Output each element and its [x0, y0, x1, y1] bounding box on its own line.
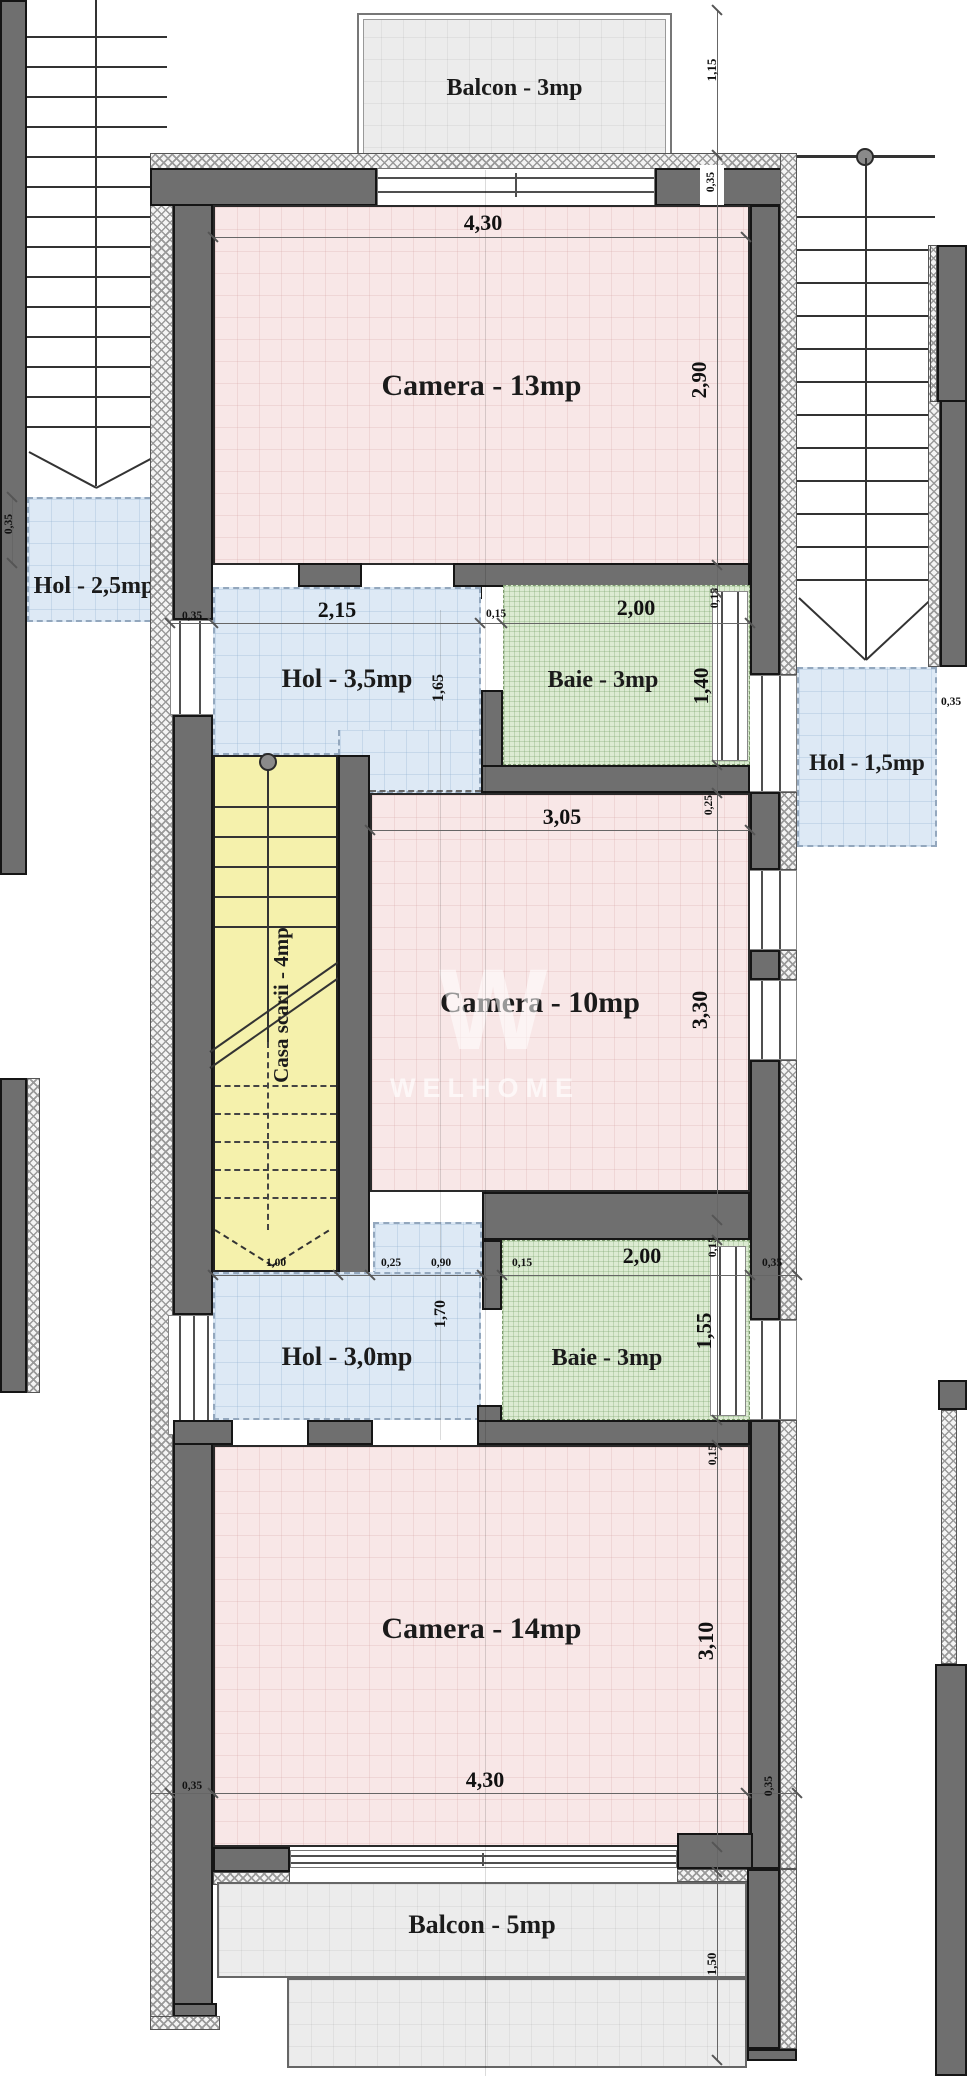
wall-segment [0, 0, 27, 875]
dim-baie-sus-wall: 0,25 [702, 787, 716, 823]
wall-left [173, 1435, 213, 2016]
door-right [748, 675, 797, 792]
wall-right [750, 205, 780, 675]
wall-segment [937, 245, 967, 402]
room-label: Camera - 13mp [213, 369, 750, 403]
dim-line [170, 623, 750, 624]
window-right [748, 980, 797, 1060]
wall-segment [938, 1380, 967, 1410]
stair-step-dashed [215, 1197, 336, 1199]
insulation-hatch [930, 245, 937, 402]
room-balcon-bottom-step [287, 1978, 747, 2068]
dim-camera10-height: 3,30 [688, 975, 712, 1045]
dim-wall-top-right: 0,35 [704, 164, 718, 200]
dim-line [150, 1793, 797, 1794]
room-label: Balcon - 5mp [217, 1910, 747, 1940]
stair-newel [259, 753, 277, 771]
dim-row-jos-right-wall: 0,35 [752, 1256, 792, 1270]
room-label: Camera - 14mp [213, 1612, 750, 1646]
wall-right [750, 950, 780, 980]
dim-camera13-width: 4,30 [383, 211, 583, 235]
dim-camera14-width: 4,30 [385, 1768, 585, 1792]
window-right [748, 1320, 797, 1420]
dim-wall-bottom-right: 0,35 [762, 1768, 776, 1804]
dim-row-jos-pier: 0,15 [502, 1256, 542, 1270]
door-left [170, 620, 214, 715]
dim-row-jos-scara: 1,00 [254, 1256, 298, 1270]
wall-stair-right [338, 755, 370, 1308]
threshold-dashed [370, 790, 481, 792]
insulation-hatch [150, 2016, 220, 2030]
dim-line [370, 830, 750, 831]
room-label: Casa scarii - 4mp [268, 890, 294, 1120]
wall-right [750, 792, 780, 870]
window-top [377, 168, 655, 206]
wall-top [655, 168, 797, 206]
dim-row-sus-baie-width: 2,00 [566, 596, 706, 620]
insulation-hatch [27, 1078, 40, 1393]
wall-segment [747, 2049, 797, 2061]
dim-row-jos-wall: 0,25 [371, 1256, 411, 1270]
dim-wall-bottom-left: 0,35 [172, 1779, 212, 1793]
wall-left [173, 168, 213, 620]
wall-segment [213, 1847, 290, 1872]
wall-segment [935, 1664, 967, 2076]
room-hol-2-5 [27, 497, 170, 622]
insulation-hatch [780, 1060, 797, 1320]
stair-step-dashed [215, 1169, 336, 1171]
stair-center-line [865, 158, 867, 660]
dim-baie-jos-height: 1,55 [692, 1296, 716, 1366]
dim-hol35-height: 1,65 [429, 658, 449, 718]
insulation-hatch [677, 1869, 750, 1882]
dim-hol25-wall: 0,35 [2, 506, 16, 542]
stair-left-exterior [27, 8, 167, 456]
wall-segment [298, 563, 362, 587]
stair-arrow [798, 597, 866, 661]
room-label: Baie - 3mp [502, 1344, 712, 1372]
wall-segment [307, 1420, 373, 1445]
floor-plan: Hol - 2,5mp 0,35 Balcon - 3mp 0,35 Camer… [0, 0, 967, 2076]
dim-baie-sus-height: 1,40 [689, 651, 713, 721]
dim-line [213, 237, 746, 238]
wall-left [173, 715, 213, 1315]
dim-balcon-bottom-depth: 1,50 [704, 1939, 720, 1989]
dim-line-vertical-right [717, 10, 718, 2060]
dim-hol15-wall: 0,35 [932, 695, 967, 709]
dim-row-jos-opening: 0,90 [421, 1256, 461, 1270]
insulation-hatch [150, 153, 173, 2030]
stair-step-dashed [215, 1141, 336, 1143]
dim-row-sus-opening: 2,15 [257, 598, 417, 622]
stair-arrow [29, 451, 97, 488]
dim-balcon-top-depth: 1,15 [704, 45, 720, 95]
dim-hol30-height: 1,70 [431, 1284, 451, 1344]
dim-camera13-height: 2,90 [687, 345, 711, 415]
dim-row-jos-baie-width: 2,00 [572, 1244, 712, 1268]
window-right [748, 870, 797, 950]
wall-segment [0, 1078, 27, 1393]
dim-row-sus-left-wall: 0,35 [172, 609, 212, 623]
room-label: Baie - 3mp [503, 666, 703, 694]
insulation-hatch [780, 792, 797, 870]
stair-arrow [865, 597, 933, 661]
watermark-logo: W [423, 950, 563, 1070]
wall-right [750, 1060, 780, 1320]
window-left [168, 1315, 218, 1435]
room-label: Hol - 1,5mp [793, 750, 941, 776]
insulation-hatch [780, 950, 797, 980]
stair-center-line [95, 0, 97, 486]
insulation-hatch [941, 1410, 957, 1664]
insulation-hatch [780, 1869, 797, 2049]
wall-segment [747, 1869, 780, 2049]
insulation-hatch [780, 153, 797, 675]
wall-top [150, 168, 377, 206]
dim-camera10-width: 3,05 [482, 805, 642, 829]
insulation-hatch [780, 1420, 797, 1869]
door-balcony [290, 1850, 677, 1868]
wall-segment [173, 2003, 217, 2017]
wall-segment [677, 1833, 753, 1869]
dim-camera14-height: 3,10 [694, 1606, 718, 1676]
wall-segment [173, 1420, 233, 1445]
wall-segment [453, 563, 750, 587]
room-label: Balcon - 3mp [357, 74, 672, 102]
